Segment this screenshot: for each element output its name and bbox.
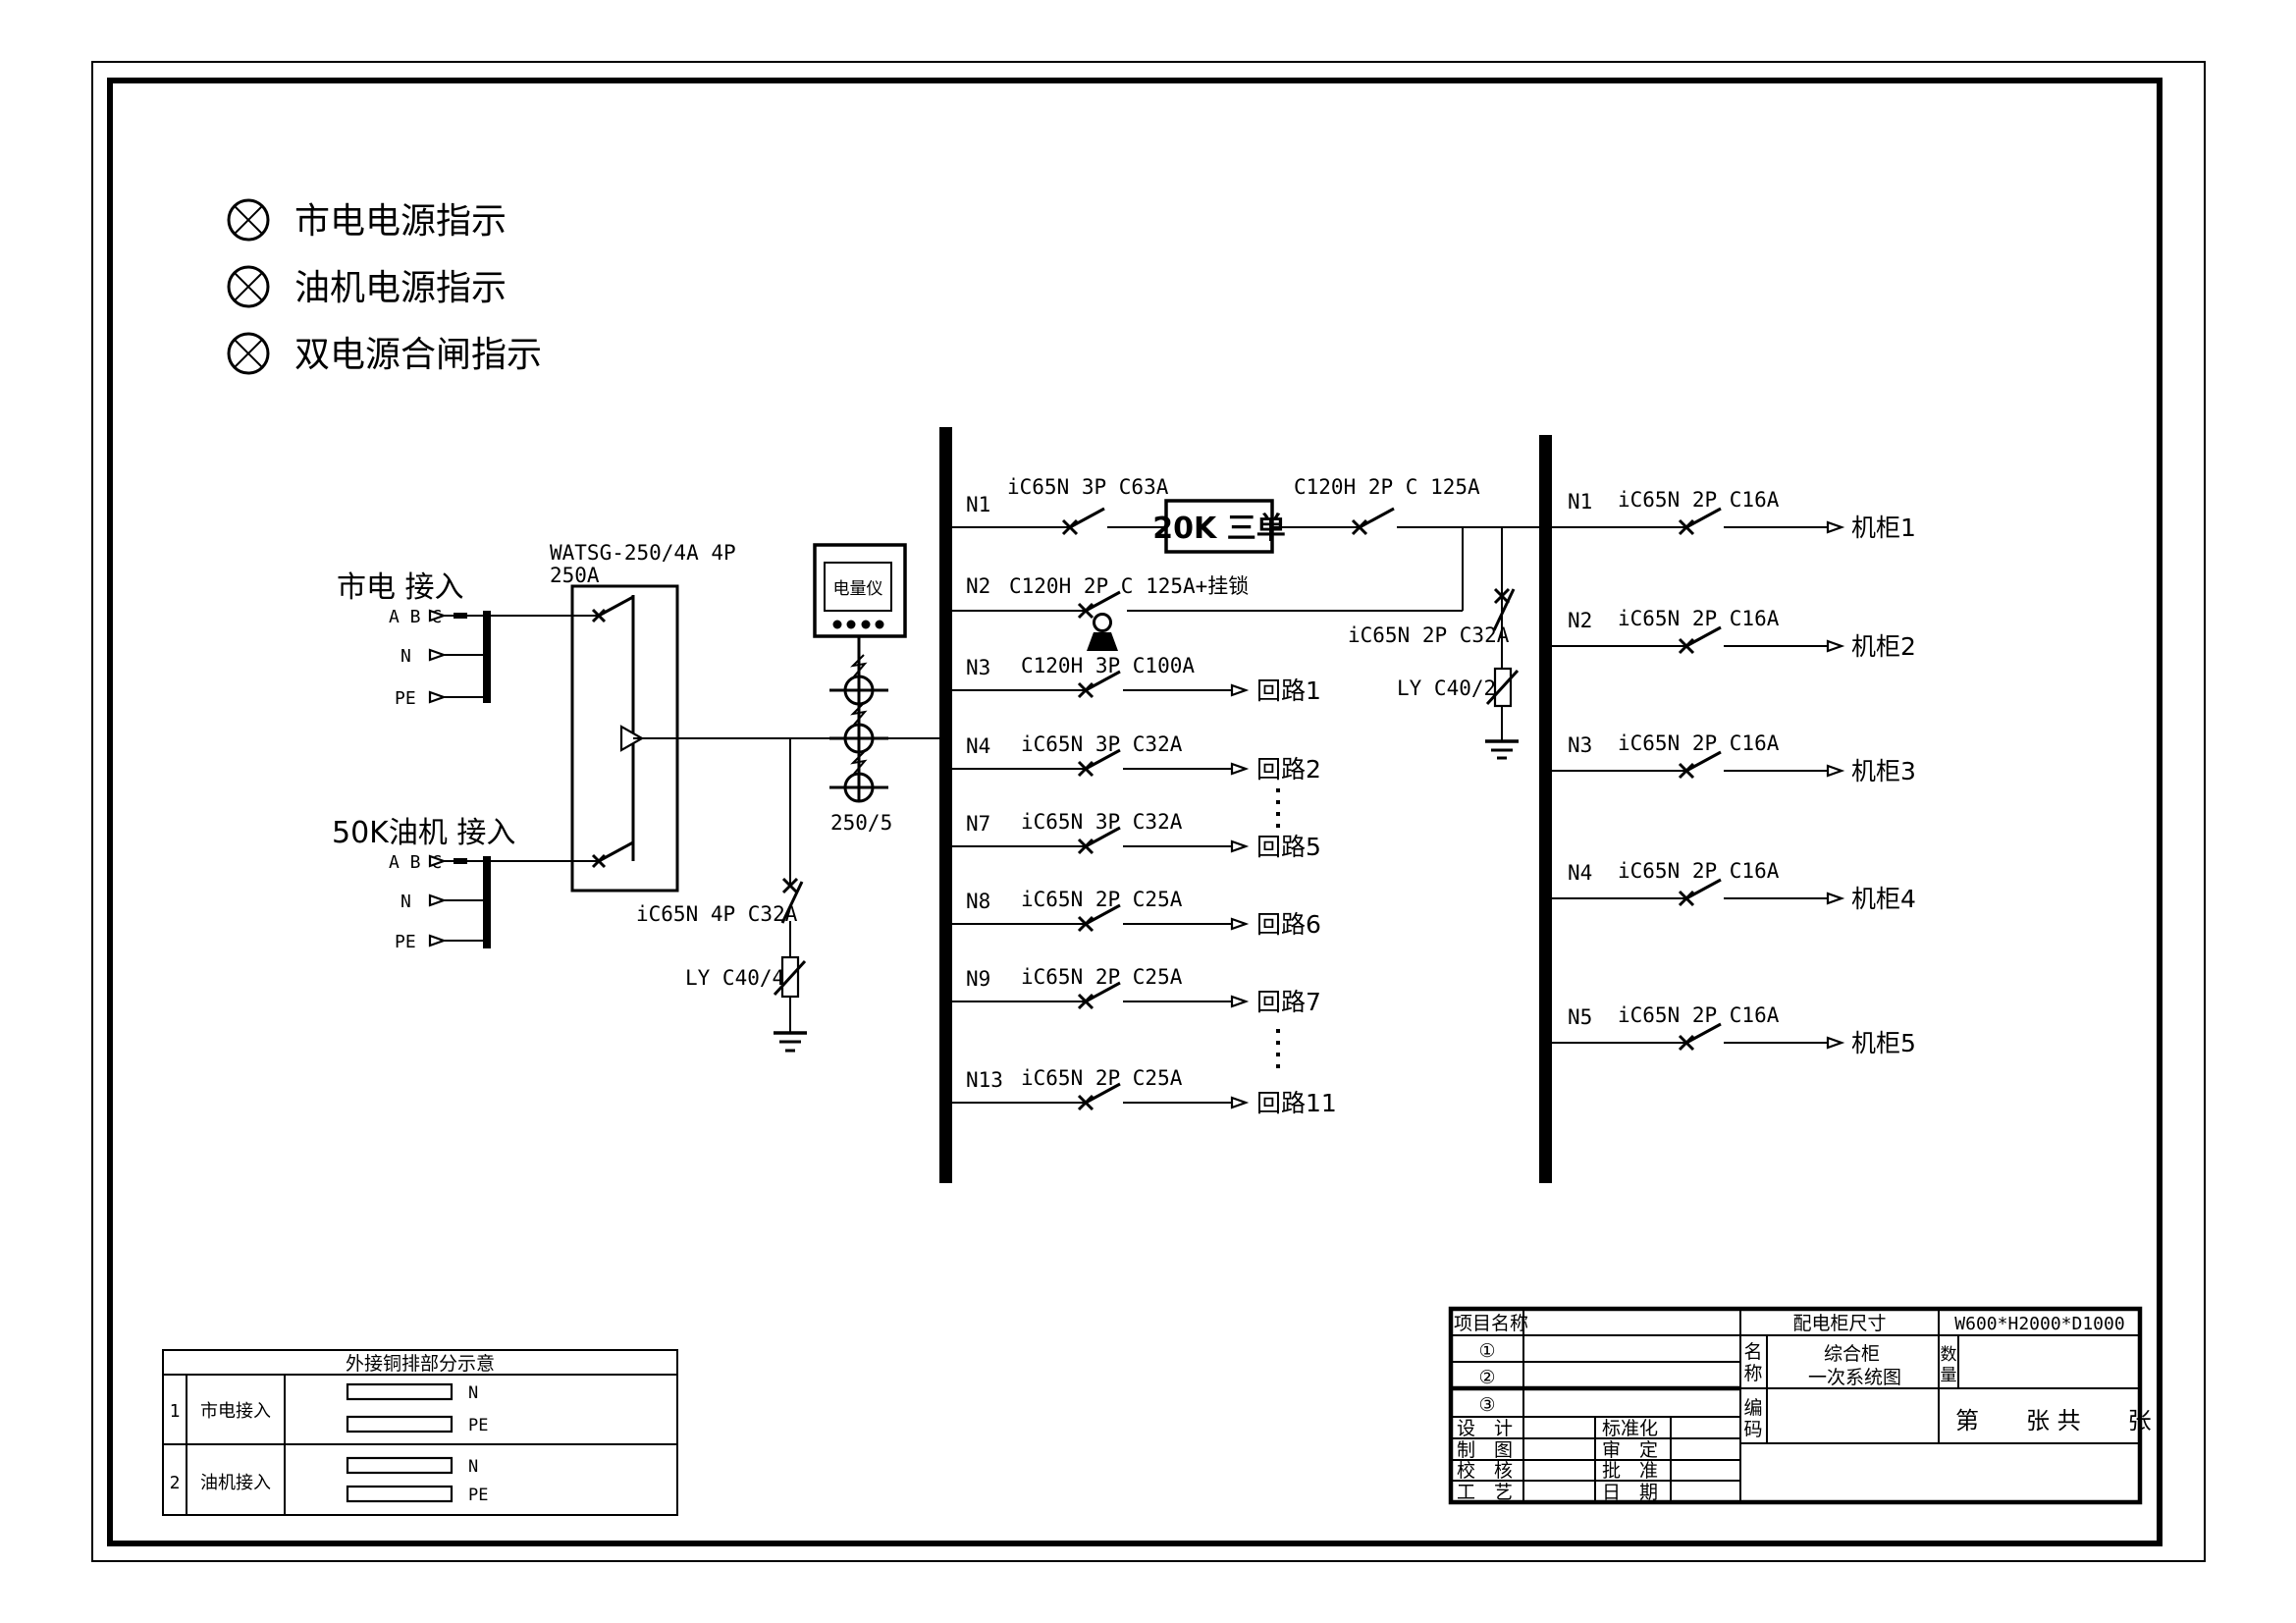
feeder-left-n4: N4 iC65N 3P C32A 回路2	[952, 732, 1321, 784]
ats-rating-label: 250A	[550, 564, 600, 587]
feeder-spec: iC65N 3P C63A	[1007, 475, 1169, 499]
feeder-left-n9: N9 iC65N 2P C25A 回路7	[952, 965, 1321, 1016]
table-title: 外接铜排部分示意	[346, 1353, 495, 1375]
standard-label: 标准化	[1602, 1418, 1658, 1439]
feeder-dest: 回路5	[1256, 833, 1321, 861]
code-label-char: 码	[1743, 1419, 1762, 1440]
padlock-icon	[1087, 615, 1118, 652]
feeder-spec: iC65N 2P C16A	[1618, 607, 1780, 630]
feeder-left-n13: N13 iC65N 2P C25A 回路11	[952, 1066, 1337, 1117]
feeder-arrow-icon	[1232, 997, 1246, 1006]
feeder-arrow-icon	[1828, 522, 1842, 532]
feeder-spec: iC65N 2P C16A	[1618, 1003, 1780, 1027]
lamp-icon	[229, 334, 268, 373]
feeder-spec2: C120H 2P C 125A	[1294, 475, 1480, 499]
feeder-arrow-icon	[1232, 919, 1246, 929]
feeder-spec: iC65N 3P C32A	[1021, 810, 1183, 834]
feeder-right-n2: N2 iC65N 2P C16A 机柜2	[1552, 607, 1916, 661]
title-block: 项目名称 ① ② ③ 设 计 标准化 制 图 审 定 校 核 批 准 工 艺 日…	[1451, 1309, 2152, 1503]
feeder-spec: iC65N 2P C16A	[1618, 859, 1780, 883]
mains-incoming: 市电 接入 A B C N PE	[337, 570, 572, 709]
name-label-char: 称	[1743, 1363, 1762, 1384]
feeder-id: N2	[966, 574, 990, 598]
feeder-id: N2	[1568, 609, 1592, 632]
copper-bar-icon	[347, 1384, 452, 1399]
feeder-arrow-icon	[1232, 764, 1246, 774]
project-name-label: 项目名称	[1454, 1313, 1528, 1334]
feeder-arrow-icon	[1828, 1038, 1842, 1048]
main-spd-breaker-label: iC65N 4P C32A	[636, 902, 798, 926]
row-name: 油机接入	[200, 1473, 271, 1493]
feeder-spec: C120H 2P C 125A+挂锁	[1009, 574, 1249, 598]
genset-copper-bar	[483, 856, 491, 948]
drawing-page: 市电电源指示 油机电源指示 双电源合闸指示 市电 接入 A B C N PE 5…	[0, 0, 2296, 1623]
qty-label-char: 量	[1941, 1366, 1957, 1385]
feeder-id: N3	[1568, 733, 1592, 757]
feeder-dest: 机柜3	[1851, 757, 1916, 785]
checked-label: 校 核	[1457, 1460, 1513, 1482]
code-label-char: 编	[1743, 1397, 1762, 1419]
one-line-diagram-canvas: 市电电源指示 油机电源指示 双电源合闸指示 市电 接入 A B C N PE 5…	[0, 0, 2296, 1623]
feeder-id: N8	[966, 890, 990, 913]
legend-label-mains: 市电电源指示	[294, 201, 507, 242]
feeder-spec: iC65N 2P C16A	[1618, 488, 1780, 512]
feeder-right-n1: N1 iC65N 2P C16A 机柜1	[1552, 488, 1916, 542]
genset-incoming: 50K油机 接入 A B C N PE	[332, 816, 572, 952]
approved-label: 审 定	[1602, 1439, 1658, 1461]
ups-box-label: 20K 三单	[1152, 512, 1285, 546]
feeder-spec: iC65N 3P C32A	[1021, 732, 1183, 756]
genset-neutral-label: N	[400, 892, 411, 912]
feeder-id: N13	[966, 1068, 1003, 1092]
bar-label: N	[468, 1457, 478, 1477]
feeder-id: N4	[1568, 861, 1592, 885]
genset-title: 50K油机 接入	[332, 816, 515, 850]
feeder-dest: 回路1	[1256, 676, 1321, 705]
sheet-number-label: 第 张 共 张	[1955, 1407, 2152, 1434]
feeder-arrow-icon	[1232, 841, 1246, 851]
ground-icon	[1485, 741, 1519, 758]
meter-terminal-dot	[847, 621, 856, 629]
qty-label-char: 数	[1941, 1345, 1957, 1365]
feeder-arrow-icon	[1828, 893, 1842, 903]
power-meter: 电量仪 250/5	[815, 545, 905, 835]
bus-spd-breaker-label: iC65N 2P C32A	[1348, 623, 1510, 647]
cabinet-size-label: 配电柜尺寸	[1792, 1313, 1886, 1334]
feeder-id: N1	[1568, 490, 1592, 514]
ats-model-label: WATSG-250/4A 4P	[550, 541, 736, 565]
copper-bar-icon	[347, 1487, 452, 1501]
feeder-id: N9	[966, 967, 990, 991]
cabinet-busbar	[1539, 435, 1552, 1183]
item2-label: ②	[1478, 1367, 1495, 1388]
feeder-spec: iC65N 2P C25A	[1021, 965, 1183, 989]
copper-bar-icon	[347, 1458, 452, 1473]
feeder-dest: 机柜1	[1851, 514, 1916, 542]
feeder-id: N3	[966, 656, 990, 679]
bus-spd-arrester-label: LY C40/2	[1397, 676, 1496, 700]
legend: 市电电源指示 油机电源指示 双电源合闸指示	[229, 200, 542, 375]
copper-bar-table: 外接铜排部分示意 1 市电接入 N PE 2 油机接入 N PE	[163, 1350, 677, 1515]
feeder-arrow-icon	[1232, 685, 1246, 695]
drawing-name-line2: 一次系统图	[1808, 1367, 1901, 1388]
feeder-left-n3: N3 C120H 3P C100A 回路1	[952, 654, 1321, 705]
mains-copper-bar	[483, 611, 491, 703]
name-label-char: 名	[1743, 1341, 1762, 1363]
feeder-arrow-icon	[1828, 641, 1842, 651]
feeder-spec: iC65N 2P C25A	[1021, 1066, 1183, 1090]
bus-spd-branch: iC65N 2P C32A LY C40/2	[1348, 527, 1519, 758]
copper-bar-icon	[347, 1417, 452, 1432]
ratified-label: 批 准	[1602, 1460, 1658, 1482]
row-no: 2	[170, 1473, 181, 1493]
feeder-dest: 回路2	[1256, 755, 1321, 784]
terminal-arrow-icon	[430, 936, 444, 946]
bar-label: PE	[468, 1486, 488, 1505]
row-name: 市电接入	[200, 1401, 271, 1422]
item1-label: ①	[1478, 1340, 1495, 1362]
legend-label-dual-close: 双电源合闸指示	[294, 335, 542, 375]
terminal-arrow-icon	[430, 650, 444, 660]
feeder-dest: 回路11	[1256, 1089, 1337, 1117]
mains-earth-label: PE	[395, 688, 416, 709]
feeder-dest: 机柜2	[1851, 632, 1916, 661]
ct-ratio-label: 250/5	[830, 811, 892, 835]
feeder-left-n8: N8 iC65N 2P C25A 回路6	[952, 888, 1321, 939]
mains-title: 市电 接入	[337, 570, 464, 605]
bar-label: N	[468, 1383, 478, 1403]
drawn-label: 制 图	[1457, 1439, 1513, 1461]
row-no: 1	[170, 1401, 181, 1422]
feeder-spec: C120H 3P C100A	[1021, 654, 1195, 677]
design-label: 设 计	[1457, 1418, 1513, 1439]
feeder-spec: iC65N 2P C16A	[1618, 731, 1780, 755]
terminal-arrow-icon	[430, 895, 444, 905]
main-busbar	[939, 427, 952, 1183]
bar-label: PE	[468, 1416, 488, 1435]
drawing-name-line1: 综合柜	[1824, 1343, 1880, 1365]
terminal-arrow-icon	[430, 692, 444, 702]
legend-label-genset: 油机电源指示	[294, 268, 507, 308]
feeder-id: N4	[966, 734, 990, 758]
item3-label: ③	[1478, 1394, 1495, 1416]
meter-terminal-dot	[862, 621, 871, 629]
meter-terminal-dot	[876, 621, 884, 629]
lamp-icon	[229, 267, 268, 306]
process-label: 工 艺	[1457, 1482, 1513, 1503]
feeder-right-n5: N5 iC65N 2P C16A 机柜5	[1552, 1003, 1916, 1057]
feeder-id: N5	[1568, 1005, 1592, 1029]
feeder-dest: 回路6	[1256, 910, 1321, 939]
feeder-arrow-icon	[1232, 1098, 1246, 1108]
feeder-id: N7	[966, 812, 990, 836]
ground-icon	[774, 1033, 807, 1051]
feeder-right-n4: N4 iC65N 2P C16A 机柜4	[1552, 859, 1916, 913]
main-spd-arrester-label: LY C40/4	[685, 966, 784, 990]
feeder-dest: 机柜4	[1851, 885, 1916, 913]
meter-terminal-dot	[833, 621, 842, 629]
genset-earth-label: PE	[395, 932, 416, 952]
mains-neutral-label: N	[400, 646, 411, 667]
feeder-id: N1	[966, 493, 990, 516]
feeder-spec: iC65N 2P C25A	[1021, 888, 1183, 911]
cabinet-size-value: W600*H2000*D1000	[1954, 1314, 2124, 1334]
meter-label: 电量仪	[833, 579, 883, 599]
main-spd-branch: iC65N 4P C32A LY C40/4	[636, 738, 807, 1051]
feeder-left-n7: N7 iC65N 3P C32A 回路5	[952, 810, 1321, 861]
feeder-dest: 机柜5	[1851, 1029, 1916, 1057]
feeder-right-n3: N3 iC65N 2P C16A 机柜3	[1552, 731, 1916, 785]
ats-transfer-switch: WATSG-250/4A 4P 250A	[550, 541, 736, 891]
date-label: 日 期	[1602, 1482, 1658, 1503]
feeder-arrow-icon	[1828, 766, 1842, 776]
feeder-dest: 回路7	[1256, 988, 1321, 1016]
lamp-icon	[229, 200, 268, 240]
